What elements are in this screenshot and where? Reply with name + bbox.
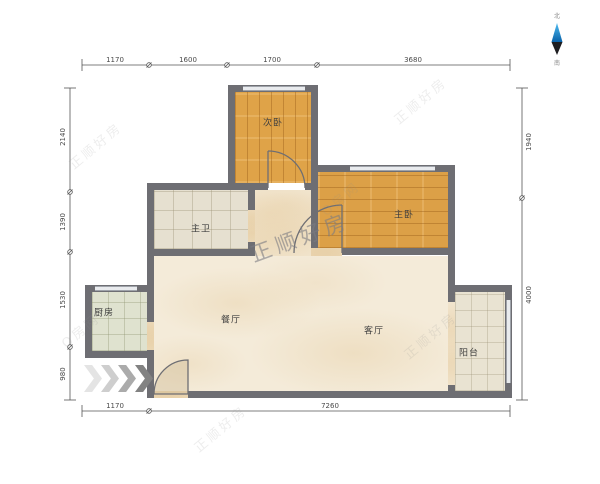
wall [448,165,455,302]
kitchen-door-gap-floor [147,322,154,350]
bedroom1-window [350,166,435,171]
room-balcony-floor [455,292,505,391]
wall [448,285,512,292]
dim-top-3: 1700 [263,56,281,64]
balcony-window [506,300,511,383]
dim-left-2: 1390 [59,213,67,231]
wall [85,351,154,358]
living-dining-floor [154,256,448,391]
floor-plan: 北 南 次卧 主卧 主卫 厨房 餐厅 客厅 阳台 1170 1600 1700 … [0,0,600,484]
bedroom1-door-gap-floor [311,248,342,256]
wall [248,190,255,210]
compass-south-label: 南 [554,58,560,67]
dim-left-1: 2140 [59,128,67,146]
compass-north-label: 北 [554,11,560,20]
room-label-bathroom: 主卫 [191,222,211,235]
compass-icon [552,23,563,55]
room-bedroom2-floor [235,92,311,183]
watermark-faint: 正顺好房 [389,72,450,128]
watermark-faint: 正顺好房 [189,400,250,456]
entrance-gap-floor [154,391,188,398]
dim-right-2: 4000 [525,286,533,304]
dim-left-4: 980 [59,367,67,380]
dim-bottom-1: 1170 [106,402,124,410]
dim-right-1: 1940 [525,133,533,151]
dim-top-4: 3680 [404,56,422,64]
watermark-faint: 正顺好房 [64,117,125,173]
dim-bottom-2: 7260 [321,402,339,410]
dim-top-1: 1170 [106,56,124,64]
room-label-bedroom2: 次卧 [263,116,283,129]
wall [147,249,255,256]
wall [342,248,455,255]
wall [147,183,268,190]
bedroom2-window [243,86,305,91]
entry-direction-arrow [84,365,102,392]
room-bathroom-floor [154,190,248,249]
wall [228,85,235,190]
entry-direction-arrow [101,365,119,392]
entry-direction-arrow [118,365,136,392]
room-label-living: 客厅 [364,324,384,337]
dim-left-3: 1530 [59,291,67,309]
room-label-bedroom1: 主卧 [394,208,414,221]
wall [188,391,512,398]
dim-top-2: 1600 [179,56,197,64]
room-label-balcony: 阳台 [459,346,479,359]
kitchen-window [95,286,137,291]
room-label-dining: 餐厅 [221,313,241,326]
wall [305,183,311,190]
